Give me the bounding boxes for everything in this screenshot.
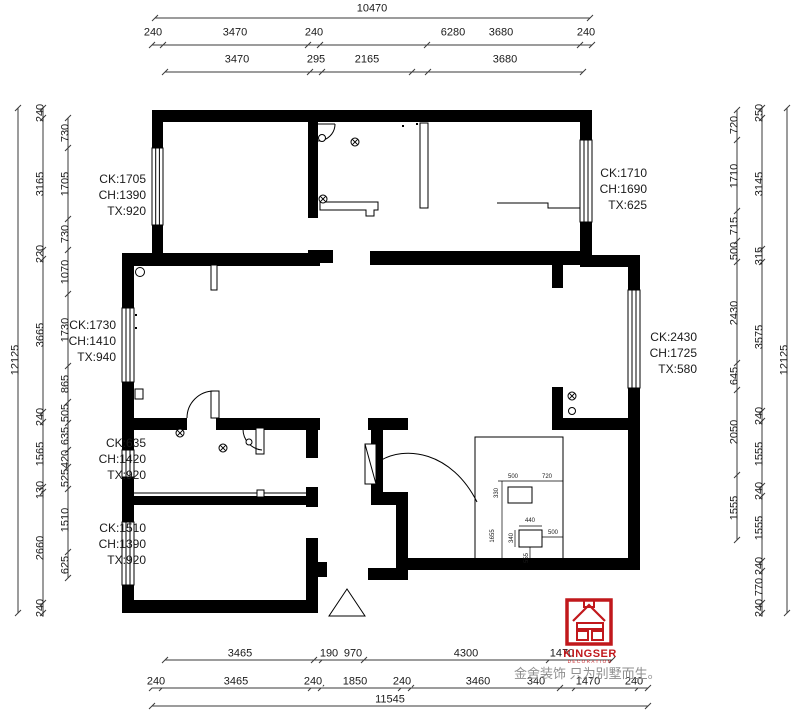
dim-label: 1565 [36,442,47,466]
dim-label: 970 [343,649,363,660]
inset-dim-label: 330 [494,488,500,498]
inset-dim-label: 500 [508,474,518,480]
dim-label: 11545 [374,695,406,706]
wall-stub-panel [211,265,217,290]
dim-label: 240 [36,408,47,426]
window-spec-label: CK:1710 CH:1690 TX:625 [557,165,647,213]
inset-dim-label: 1655 [490,529,496,542]
detail-inset [475,437,563,569]
logo-subtitle: DECORATION [557,660,623,665]
dim-label: 250 [755,104,766,122]
dim-label: 4300 [453,649,479,660]
window-spec-label: CK:2430 CH:1725 TX:580 [607,329,697,377]
small-fixture [257,490,264,497]
entry-triangle-marker [329,589,365,616]
dim-label: 1710 [730,164,741,188]
dim-label: 190 [319,649,339,660]
dim-label: 770 [755,578,766,596]
dim-label: 240 [755,599,766,617]
circle-symbol [136,268,145,277]
ck-value: CK:2430 [607,329,697,345]
ch-value: CH:1390 [56,187,146,203]
window-spec-label: CK:1705 CH:1390 TX:920 [56,171,146,219]
window-spec-label: CK:1510 CH:1390 TX:920 [56,520,146,568]
dim-label: 1555 [755,516,766,540]
dim-label: 1555 [730,496,741,520]
dim-label: 1850 [342,677,368,688]
dim-label: 645 [730,367,741,385]
dim-label: 220 [36,245,47,263]
dim-label: 12125 [11,345,22,376]
dot [402,125,404,127]
dim-label: 715 [730,217,741,235]
ch-value: CH:1410 [26,333,116,349]
dim-label: 3460 [465,677,491,688]
dim-label: 240 [392,677,412,688]
tx-value: TX:920 [56,552,146,568]
inset-dim-label: 440 [525,518,535,524]
dim-label: 240 [36,599,47,617]
dot [135,327,137,329]
tx-value: TX:920 [56,203,146,219]
ch-value: CH:1390 [56,536,146,552]
flue-symbol [319,195,327,203]
window-spec-label: CK:635 CH:1420 TX:920 [56,435,146,483]
ch-value: CH:1725 [607,345,697,361]
brand-tagline: 金舍装饰 只为别墅而生。 [514,666,674,682]
dim-label: 240 [36,104,47,122]
dim-label: 130 [36,481,47,499]
window-top-left [152,148,163,225]
dim-label: 2050 [730,420,741,444]
flue-symbol [219,444,227,452]
dim-label: 240 [304,28,324,39]
shower-fixture [243,428,264,454]
doors [187,124,477,502]
dim-label: 730 [61,225,72,243]
tx-value: TX:580 [607,361,697,377]
ch-value: CH:1420 [56,451,146,467]
dim-label: 500 [730,242,741,260]
inset-dim-label: 720 [542,474,552,480]
dim-label: 2430 [730,301,741,325]
dim-label: 240 [303,677,323,688]
dim-label: 3470 [224,55,250,66]
ck-value: CK:635 [56,435,146,451]
ck-value: CK:1510 [56,520,146,536]
window-left-mid [122,308,134,382]
dim-label: 240 [143,28,163,39]
flue-symbol [351,138,359,146]
bedroom2-door [187,391,219,418]
window-spec-label: CK:1730 CH:1410 TX:940 [26,317,116,365]
ck-value: CK:1730 [26,317,116,333]
circle-symbol [569,408,576,415]
dim-label: 3575 [755,325,766,349]
dim-label: 240 [755,557,766,575]
ck-value: CK:1710 [557,165,647,181]
inset-dim-label: 500 [548,530,558,536]
ch-value: CH:1690 [557,181,647,197]
dim-label: 3165 [36,172,47,196]
small-fixture [135,389,143,399]
dim-label: 3465 [223,677,249,688]
floorplan-sheet: 10470 240 3470 240 6280 3680 240 3470 29… [0,0,800,714]
dim-label: 315 [755,247,766,265]
dim-label: 3470 [222,28,248,39]
dim-label: 240 [755,482,766,500]
inset-dim-label: 340 [509,533,515,543]
dim-label: 730 [61,124,72,142]
kitchen-door [318,124,335,142]
flue-symbols [135,123,576,452]
tx-value: TX:920 [56,467,146,483]
glass-partition [420,123,428,208]
tx-value: TX:940 [26,349,116,365]
dim-label: 505 [61,404,72,422]
dim-label: 10470 [356,4,389,15]
ck-value: CK:1705 [56,171,146,187]
inset-fixture-bottom [519,530,542,547]
dim-label: 1555 [755,442,766,466]
tx-value: TX:625 [557,197,647,213]
dim-label: 1070 [61,260,72,284]
dim-label: 3680 [492,55,518,66]
inset-dim-label: 555 [524,553,530,563]
flue-symbol [176,429,184,437]
dim-label: 3465 [227,649,253,660]
dot [416,123,418,125]
flue-symbol [568,392,576,400]
dim-label: 240 [146,677,166,688]
dim-label: 240 [755,407,766,425]
dim-label: 865 [61,375,72,393]
dim-label: 240 [576,28,596,39]
kingser-logo-mark [567,600,611,644]
inset-fixture-top [508,487,532,503]
dim-label: 720 [730,116,741,134]
dim-label: 3680 [488,28,514,39]
dim-label: 2660 [36,536,47,560]
dot [135,314,137,316]
kitchen-counter [320,202,378,216]
dim-label: 12125 [780,345,791,376]
dim-label: 6280 [440,28,466,39]
dim-label: 3145 [755,172,766,196]
dim-label: 295 [306,55,326,66]
dim-label: 2165 [354,55,380,66]
